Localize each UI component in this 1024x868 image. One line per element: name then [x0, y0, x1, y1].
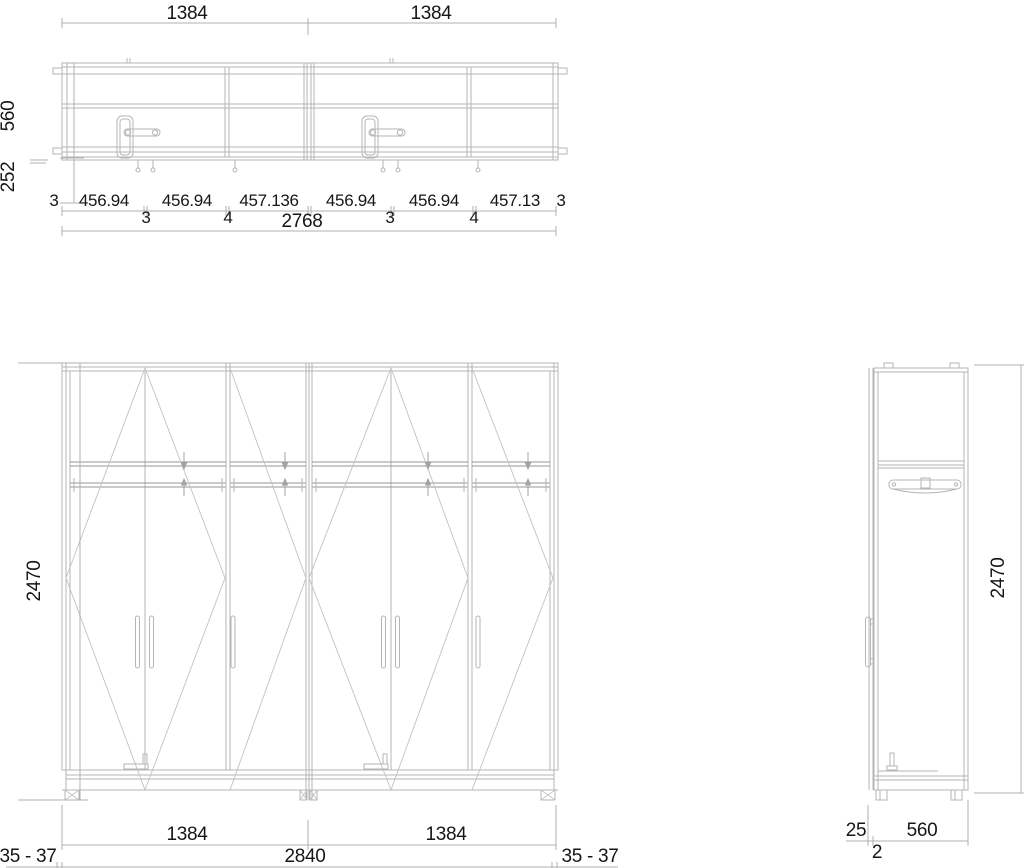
side-view: 2470 25 2 560	[846, 363, 1024, 863]
plan-seg-2: 456.94	[162, 191, 212, 210]
plan-gap-3: 4	[469, 208, 478, 227]
front-dim-clearance-right: 35 - 37	[561, 846, 618, 867]
plan-dim-total: 2768	[281, 211, 322, 232]
plan-gap-0: 3	[141, 208, 150, 227]
plan-dim-front-extension: 252	[0, 162, 19, 193]
technical-drawing-canvas: 1384 1384 560 252 3 456.94 456.94 457.13…	[0, 0, 1024, 868]
side-plinth-feet	[876, 790, 962, 800]
front-dim-height: 2470	[24, 560, 45, 601]
front-dim-total: 2840	[284, 846, 325, 867]
door-handles	[136, 616, 481, 668]
front-dim-module-left: 1384	[166, 824, 208, 845]
plinth-feet	[65, 790, 555, 800]
front-dim-clearance-left: 35 - 37	[0, 846, 57, 867]
plan-view: 1384 1384 560 252 3 456.94 456.94 457.13…	[0, 3, 567, 236]
front-dim-module-right: 1384	[425, 824, 467, 845]
side-dim-gap: 2	[872, 842, 882, 863]
plan-dim-module-left: 1384	[166, 3, 208, 24]
side-dim-depth: 560	[907, 820, 938, 841]
floor-anchor-right	[359, 754, 393, 770]
plan-dim-module-right: 1384	[410, 3, 452, 24]
plan-seg-4: 456.94	[326, 191, 376, 210]
hinge-pin-heads	[136, 168, 480, 172]
plan-gap-2: 3	[385, 208, 394, 227]
wardrobe-drawing: 1384 1384 560 252 3 456.94 456.94 457.13…	[0, 0, 1024, 868]
plan-seg-0: 3	[49, 191, 58, 210]
plan-seg-3: 457.136	[239, 191, 298, 210]
plan-seg-1: 456.94	[79, 191, 129, 210]
adjustable-foot	[887, 753, 897, 770]
plan-seg-6: 457.13	[490, 191, 540, 210]
plan-seg-5: 456.94	[409, 191, 459, 210]
side-dim-height: 2470	[988, 557, 1009, 598]
plan-dim-depth: 560	[0, 101, 19, 132]
plan-dimensions: 1384 1384 560 252 3 456.94 456.94 457.13…	[0, 3, 566, 236]
side-dim-door-offset: 25	[846, 820, 867, 841]
side-dimensions: 2470 25 2 560	[846, 365, 1024, 863]
front-view: 2470 1384 1384 2840 35 - 37 35 - 37	[0, 363, 619, 868]
plan-gap-1: 4	[223, 208, 232, 227]
plan-seg-7: 3	[556, 191, 565, 210]
hanger-bracket	[889, 478, 961, 493]
floor-anchor-left	[119, 754, 153, 770]
